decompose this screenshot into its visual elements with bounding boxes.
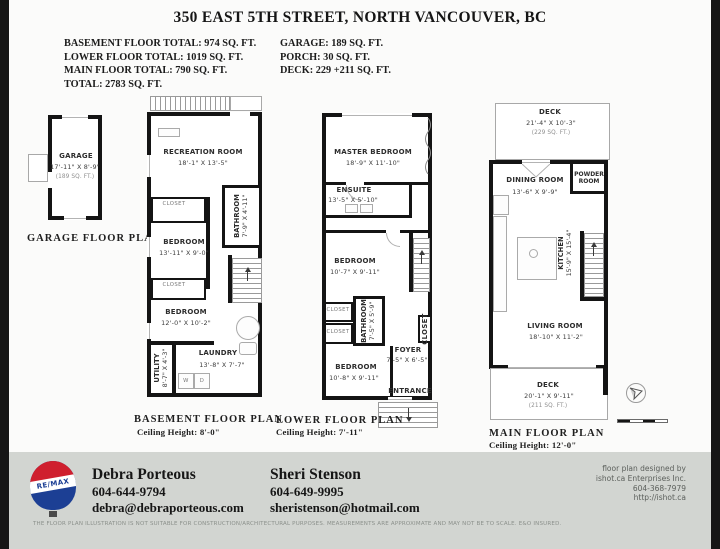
refrigerator xyxy=(493,195,509,215)
sink xyxy=(360,204,373,213)
wall-segment xyxy=(603,368,608,395)
main-ceiling-height: Ceiling Height: 12'-0" xyxy=(489,440,576,450)
room-label-vertical: BATHROOM 7'-9" X 4'-11" xyxy=(233,194,249,238)
room-label: POWDER ROOM xyxy=(573,171,605,185)
room-label: KITCHEN xyxy=(557,230,565,277)
washer-label: W xyxy=(183,377,189,386)
basement-ceiling-height: Ceiling Height: 8'-0" xyxy=(137,427,220,437)
wall-segment xyxy=(322,230,432,233)
summary-line-total: TOTAL: 2783 SQ. FT. xyxy=(64,78,256,92)
room-dims: 13'-6" X 9'-9" xyxy=(512,188,558,197)
agent-phone: 604-644-9794 xyxy=(92,484,244,500)
door-gap xyxy=(230,112,250,116)
lower-ceiling-height: Ceiling Height: 7'-11" xyxy=(276,427,363,437)
room-label: ENSUITE xyxy=(337,186,372,195)
agent-name: Debra Porteous xyxy=(92,466,244,484)
room-label: MASTER BEDROOM xyxy=(334,148,412,157)
lower-plan-caption: LOWER FLOOR PLAN xyxy=(276,415,403,426)
room-label: LIVING ROOM xyxy=(527,322,583,331)
agent-card: Debra Porteous 604-644-9794 debra@debrap… xyxy=(92,466,244,516)
stair-arrow-icon xyxy=(244,267,251,281)
garage-entry-landing xyxy=(28,154,48,182)
room-dims: 18'-10" X 11'-2" xyxy=(529,333,583,342)
designer-line: 604-368-7979 xyxy=(596,484,686,494)
room-area: (211 SQ. FT.) xyxy=(529,402,568,411)
stair-arrow-icon xyxy=(405,408,412,422)
photo-edge-right xyxy=(711,0,720,549)
window-marker xyxy=(147,155,151,177)
room-label-vertical: UTILITY 8'-7" X 4'-3" xyxy=(153,349,169,388)
room-label: FOYER xyxy=(395,346,422,355)
summary-line: BASEMENT FLOOR TOTAL: 974 SQ. FT. xyxy=(64,37,256,51)
closet-label: CLOSET xyxy=(163,281,186,290)
sink xyxy=(345,204,358,213)
room-label: ENTRANCE xyxy=(388,387,432,396)
room-dims: 7'-9" X 4'-11" xyxy=(241,194,249,238)
closet-label: CLOSET xyxy=(163,200,186,209)
closet-label-vertical: CLOSET xyxy=(421,313,429,344)
dryer-label: D xyxy=(200,377,204,386)
room-label: RECREATION ROOM xyxy=(163,148,242,157)
porch-outline xyxy=(230,96,262,111)
kitchen-island xyxy=(517,237,557,280)
room-dims: 8'-7" X 4'-3" xyxy=(161,349,169,388)
window-marker xyxy=(147,237,151,257)
room-dims: 17'-11" X 8'-9" xyxy=(50,163,100,172)
photo-edge-left xyxy=(0,0,9,549)
room-label: BEDROOM xyxy=(163,238,205,247)
wall-segment xyxy=(206,197,210,289)
room-label: LAUNDRY xyxy=(199,349,238,358)
lower-floor-plan: MASTER BEDROOM 18'-9" X 11'-10" ENSUITE … xyxy=(322,110,447,432)
agent-card: Sheri Stenson 604-649-9995 sheristenson@… xyxy=(270,466,420,516)
main-plan-caption: MAIN FLOOR PLAN xyxy=(489,428,604,439)
agent-email: debra@debraporteous.com xyxy=(92,500,244,516)
summary-line: PORCH: 30 SQ. FT. xyxy=(280,51,391,65)
island-sink xyxy=(529,249,538,258)
room-label: UTILITY xyxy=(153,349,161,388)
room-label: DECK xyxy=(539,108,561,117)
wall-segment xyxy=(147,341,214,345)
remax-balloon-logo: RE/MAX xyxy=(30,461,78,519)
designer-credit: floor plan designed by ishot.ca Enterpri… xyxy=(596,464,686,503)
garage-rear-door-marker xyxy=(64,216,86,220)
room-dims: 18'-9" X 11'-10" xyxy=(346,159,400,168)
room-area: (229 SQ. FT.) xyxy=(532,129,571,138)
garage-floor-plan: GARAGE 17'-11" X 8'-9" (189 SQ. FT.) xyxy=(26,110,126,240)
agent-phone: 604-649-9995 xyxy=(270,484,420,500)
door-gap xyxy=(48,172,52,188)
wall-segment xyxy=(172,345,176,397)
water-heater xyxy=(236,316,260,340)
designer-line: ishot.ca Enterprises Inc. xyxy=(596,474,686,484)
room-label: GARAGE xyxy=(59,152,93,161)
wall-segment xyxy=(322,215,412,218)
room-label: BATHROOM xyxy=(360,299,368,343)
kitchen-counter xyxy=(493,216,507,312)
entrance-door-marker xyxy=(388,397,412,401)
room-dims: 15'-9" X 15'-4" xyxy=(565,230,573,277)
garage-plan-caption: GARAGE FLOOR PLAN xyxy=(27,233,161,244)
summary-line: LOWER FLOOR TOTAL: 1019 SQ. FT. xyxy=(64,51,256,65)
fireplace xyxy=(158,128,180,137)
disclaimer-text: THE FLOOR PLAN ILLUSTRATION IS NOT SUITA… xyxy=(33,521,561,527)
north-arrow-icon xyxy=(625,382,647,404)
wall-segment xyxy=(322,182,432,185)
room-label-vertical: KITCHEN 15'-9" X 15'-4" xyxy=(557,230,573,277)
room-label: DECK xyxy=(537,381,559,390)
window-marker xyxy=(342,113,412,117)
footer-band: RE/MAX Debra Porteous 604-644-9794 debra… xyxy=(0,452,720,549)
designer-line: floor plan designed by xyxy=(596,464,686,474)
room-area: (189 SQ. FT.) xyxy=(56,173,95,182)
stair-arrow-icon xyxy=(418,250,425,264)
room-dims: 10'-8" X 9'-11" xyxy=(329,374,379,383)
basement-floor-plan: RECREATION ROOM 18'-1" X 13'-5" CLOSET B… xyxy=(147,95,269,405)
closet-label: CLOSET xyxy=(327,328,350,337)
area-summary-left: BASEMENT FLOOR TOTAL: 974 SQ. FT. LOWER … xyxy=(64,37,256,91)
agent-email: sheristenson@hotmail.com xyxy=(270,500,420,516)
room-label-vertical: BATHROOM 7'-5" X 5'-9" xyxy=(360,299,376,343)
floor-plan-flyer: 350 EAST 5TH STREET, NORTH VANCOUVER, BC… xyxy=(0,0,720,549)
summary-line: DECK: 229 +211 SQ. FT. xyxy=(280,64,391,78)
room-dims: 21'-4" X 10'-3" xyxy=(526,119,576,128)
room-dims: 13'-11" X 9'-0" xyxy=(159,249,209,258)
garage-door-marker xyxy=(62,115,88,119)
window-marker xyxy=(147,323,151,339)
wall-segment xyxy=(409,182,412,218)
room-dims: 18'-1" X 13'-5" xyxy=(178,159,228,168)
page-title: 350 EAST 5TH STREET, NORTH VANCOUVER, BC xyxy=(0,9,720,27)
room-label: BATHROOM xyxy=(233,194,241,238)
designer-line: http://ishot.ca xyxy=(596,493,686,503)
wall-segment xyxy=(570,191,608,194)
room-label: BEDROOM xyxy=(165,308,207,317)
wall-segment xyxy=(580,297,608,301)
area-summary-right: GARAGE: 189 SQ. FT. PORCH: 30 SQ. FT. DE… xyxy=(280,37,391,78)
room-dims: 13'-8" X 7'-7" xyxy=(199,361,245,370)
main-floor-plan: DECK 21'-4" X 10'-3" (229 SQ. FT.) POWDE… xyxy=(485,101,680,451)
room-dims: 20'-1" X 9'-11" xyxy=(524,392,574,401)
balloon-envelope: RE/MAX xyxy=(30,461,76,510)
closet-label: CLOSET xyxy=(327,306,350,315)
room-dims: 7'-5" X 5'-9" xyxy=(368,299,376,343)
furnace xyxy=(239,342,257,355)
scale-bar xyxy=(617,419,668,423)
bay-window-marker xyxy=(422,118,434,174)
agent-name: Sheri Stenson xyxy=(270,466,420,484)
exterior-staircase xyxy=(150,96,230,111)
stair-arrow-icon xyxy=(590,242,597,256)
balloon-basket xyxy=(49,511,57,517)
room-dims: 10'-7" X 9'-11" xyxy=(330,268,380,277)
staircase xyxy=(413,238,430,292)
room-label: BEDROOM xyxy=(334,257,376,266)
room-label: BEDROOM xyxy=(335,363,377,372)
summary-line: GARAGE: 189 SQ. FT. xyxy=(280,37,391,51)
summary-line: MAIN FLOOR TOTAL: 790 SQ. FT. xyxy=(64,64,256,78)
room-label: DINING ROOM xyxy=(506,176,563,185)
room-dims: 12'-0" X 10'-2" xyxy=(161,319,211,328)
room-dims: 13'-5" X 5'-10" xyxy=(328,196,378,205)
basement-plan-caption: BASEMENT FLOOR PLAN xyxy=(134,414,283,425)
